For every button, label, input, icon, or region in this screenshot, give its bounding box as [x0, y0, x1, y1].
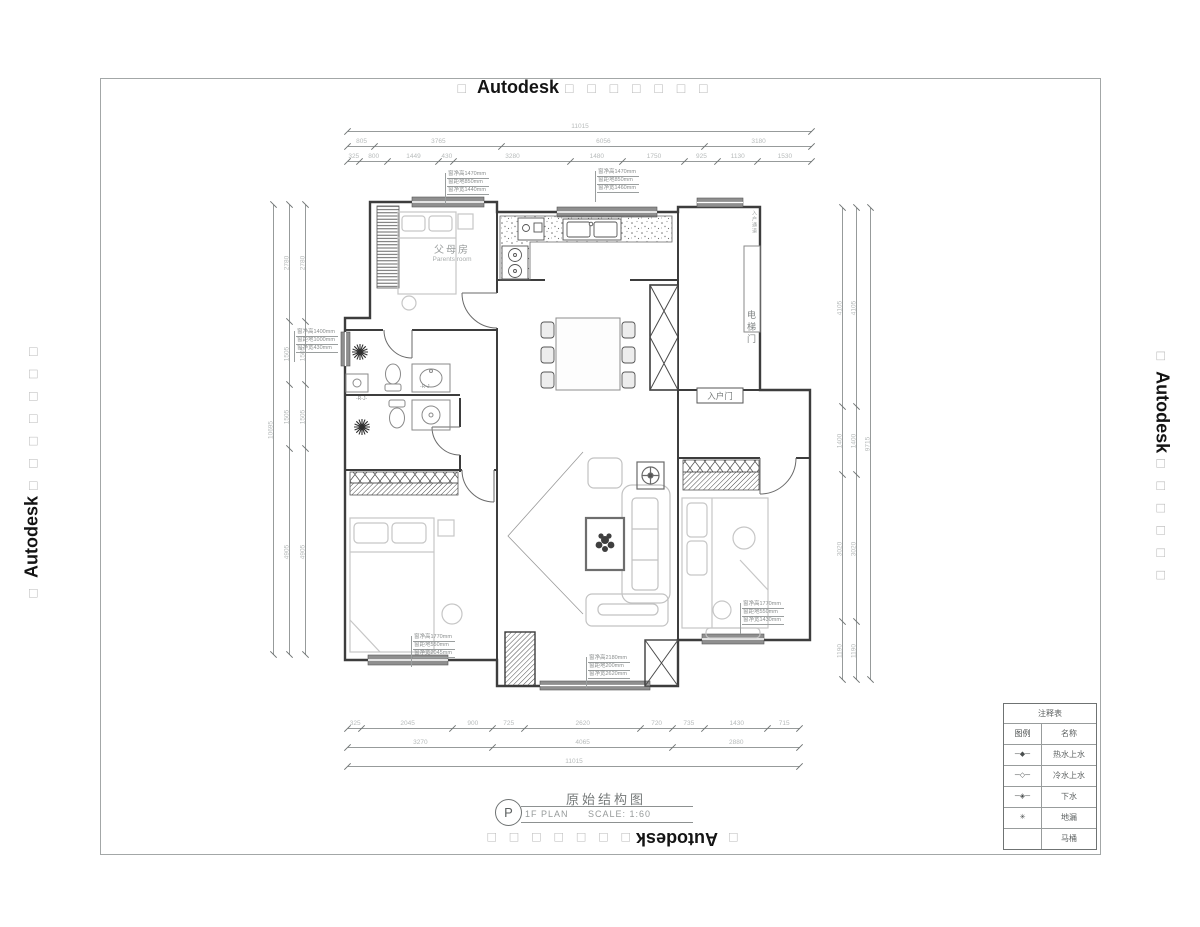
window-note-line: 窗净高1470mm	[597, 169, 639, 177]
window-note-line: 窗净宽1440mm	[447, 187, 489, 195]
interior-walls	[345, 207, 810, 660]
label-fixture-rj: -R-J-	[356, 396, 367, 402]
room-label-parents-cn: 父母房	[414, 241, 490, 256]
window-note-line: 窗距地850mm	[597, 177, 639, 185]
window-note-line: 窗净宽430mm	[296, 345, 338, 353]
window-note-line: 窗净宽1430mm	[742, 617, 784, 625]
room-label-parents-en: Parents room	[414, 256, 490, 263]
floor-drain-icon	[352, 344, 370, 435]
dining-table	[541, 318, 635, 390]
window-note: 窗净高1470mm窗距地850mm窗净宽1440mm	[447, 171, 489, 195]
radiator-hatches	[350, 206, 759, 495]
window-note-line: 窗距地550mm	[413, 642, 455, 650]
legend-header-row: 图例 名称	[1004, 724, 1096, 745]
legend-row: 马桶	[1004, 829, 1096, 849]
window-note-line: 窗距地850mm	[447, 179, 489, 187]
legend-row: ─◇─冷水上水	[1004, 766, 1096, 787]
legend-name: 热水上水	[1042, 745, 1096, 765]
window-note-line: 窗净高1470mm	[447, 171, 489, 179]
window-note: 窗净高1400mm窗距地1000mm窗净宽430mm	[296, 329, 338, 353]
legend-name: 冷水上水	[1042, 766, 1096, 786]
window-note: 窗净高1470mm窗距地850mm窗净宽1460mm	[597, 169, 639, 193]
legend-rows: ─◆─热水上水─◇─冷水上水─◈─下水✳地漏马桶	[1004, 745, 1096, 849]
legend-row: ✳地漏	[1004, 808, 1096, 829]
window-note-line: 窗距地200mm	[588, 663, 630, 671]
legend-row: ─◆─热水上水	[1004, 745, 1096, 766]
legend-symbol: ─◈─	[1004, 787, 1042, 807]
windows	[341, 197, 764, 690]
legend-name: 马桶	[1042, 829, 1096, 849]
legend-name: 下水	[1042, 787, 1096, 807]
label-entry-door: 入户门	[697, 390, 743, 402]
window-note-line: 窗距地1000mm	[296, 337, 338, 345]
window-note-line: 窗净高1400mm	[296, 329, 338, 337]
cad-floor-plan-page: { "watermarks": { "top": {"prefix": "□",…	[0, 0, 1200, 927]
label-elevator-door: 电梯门	[745, 310, 758, 346]
window-note: 窗净高1770mm窗距地550mm窗净宽1430mm	[742, 601, 784, 625]
window-note-line: 窗净高2180mm	[588, 655, 630, 663]
bedroom1-furniture	[350, 518, 462, 652]
legend-row: ─◈─下水	[1004, 787, 1096, 808]
legend-col-name: 名称	[1042, 724, 1096, 744]
legend-table: 注释表 图例 名称 ─◆─热水上水─◇─冷水上水─◈─下水✳地漏马桶	[1003, 703, 1097, 850]
window-note-line: 窗净高1770mm	[742, 601, 784, 609]
elevator-shaft	[650, 246, 760, 390]
living-room-furniture	[508, 452, 670, 626]
window-note: 窗净高2180mm窗距地200mm窗净宽2620mm	[588, 655, 630, 679]
window-note-line: 窗距地550mm	[742, 609, 784, 617]
label-shaft-note: 入户通道	[751, 210, 758, 234]
legend-col-symbol: 图例	[1004, 724, 1042, 744]
window-note-line: 窗净宽2620mm	[588, 671, 630, 679]
label-fixture-rj: -R-J-	[420, 384, 431, 390]
legend-title: 注释表	[1004, 704, 1096, 724]
legend-symbol: ─◆─	[1004, 745, 1042, 765]
legend-symbol: ─◇─	[1004, 766, 1042, 786]
legend-symbol: ✳	[1004, 808, 1042, 828]
legend-symbol	[1004, 829, 1042, 849]
window-note-line: 窗净高1770mm	[413, 634, 455, 642]
legend-name: 地漏	[1042, 808, 1096, 828]
kitchen-counter	[500, 216, 672, 280]
window-note: 窗净高1770mm窗距地550mm窗净宽2045mm	[413, 634, 455, 658]
window-note-line: 窗净宽1460mm	[597, 185, 639, 193]
window-note-line: 窗净宽2045mm	[413, 650, 455, 658]
